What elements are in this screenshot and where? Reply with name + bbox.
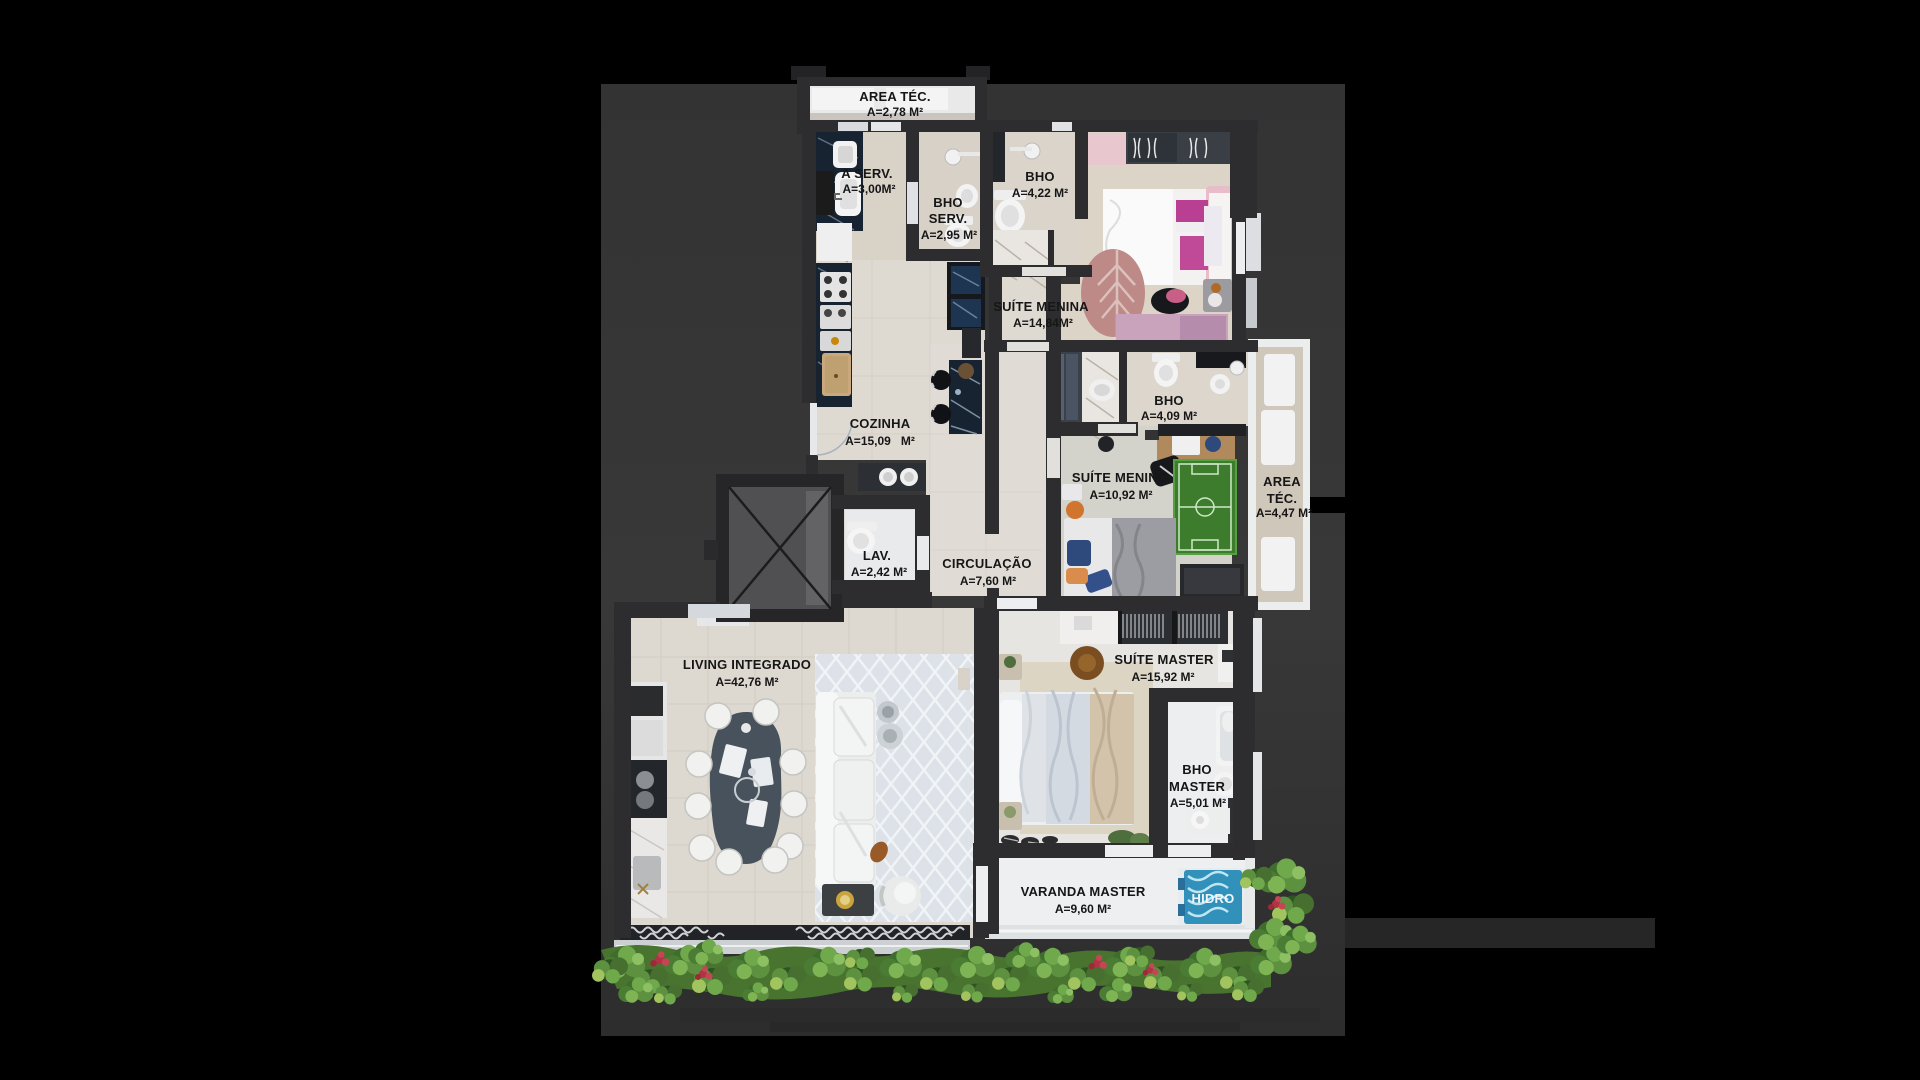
svg-text:A=2,42 M²: A=2,42 M²: [851, 565, 907, 579]
svg-text:A=15,92 M²: A=15,92 M²: [1131, 670, 1194, 684]
svg-text:A=3,00M²: A=3,00M²: [842, 182, 895, 196]
svg-text:BHO: BHO: [1154, 393, 1184, 408]
svg-text:A=14,84M²: A=14,84M²: [1013, 316, 1073, 330]
svg-text:LAV.: LAV.: [863, 548, 891, 563]
svg-text:A=4,09 M²: A=4,09 M²: [1141, 409, 1197, 423]
svg-text:A=2,78 M²: A=2,78 M²: [867, 105, 923, 119]
svg-text:SUÍTE MENINA: SUÍTE MENINA: [993, 299, 1089, 314]
svg-text:MASTER: MASTER: [1169, 779, 1226, 794]
svg-text:A SERV.: A SERV.: [841, 166, 893, 181]
svg-text:HIDRO: HIDRO: [1192, 891, 1235, 906]
svg-text:A=15,09 M²: A=15,09 M²: [845, 434, 915, 448]
svg-text:A=4,47 M²: A=4,47 M²: [1256, 506, 1312, 520]
svg-text:A=10,92 M²: A=10,92 M²: [1089, 488, 1152, 502]
svg-text:CIRCULAÇÃO: CIRCULAÇÃO: [942, 556, 1031, 571]
svg-text:VARANDA MASTER: VARANDA MASTER: [1021, 884, 1146, 899]
svg-text:A=5,01 M²: A=5,01 M²: [1170, 796, 1226, 810]
svg-text:A=42,76 M²: A=42,76 M²: [715, 675, 778, 689]
svg-text:A=9,60 M²: A=9,60 M²: [1055, 902, 1111, 916]
svg-text:BHO: BHO: [933, 195, 963, 210]
svg-text:TÉC.: TÉC.: [1267, 491, 1297, 506]
svg-text:A=4,22 M²: A=4,22 M²: [1012, 186, 1068, 200]
svg-text:A=7,60 M²: A=7,60 M²: [960, 574, 1016, 588]
svg-text:SUÍTE MASTER: SUÍTE MASTER: [1114, 652, 1214, 667]
svg-text:AREA: AREA: [1263, 474, 1301, 489]
svg-text:LIVING INTEGRADO: LIVING INTEGRADO: [683, 657, 811, 672]
svg-text:BHO: BHO: [1025, 169, 1055, 184]
svg-text:A=2,95 M²: A=2,95 M²: [921, 228, 977, 242]
svg-text:COZINHA: COZINHA: [850, 416, 911, 431]
svg-text:SERV.: SERV.: [929, 211, 968, 226]
svg-text:BHO: BHO: [1182, 762, 1212, 777]
svg-text:AREA TÉC.: AREA TÉC.: [859, 89, 930, 104]
svg-text:SUÍTE MENINO: SUÍTE MENINO: [1072, 470, 1168, 485]
